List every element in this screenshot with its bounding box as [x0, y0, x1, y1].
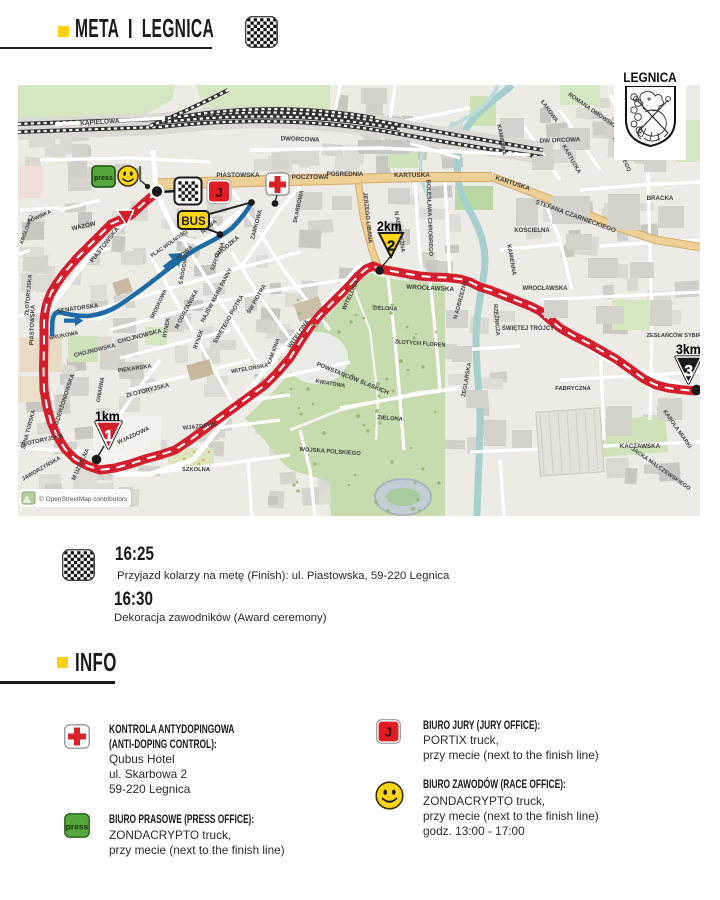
svg-text:2km: 2km [377, 219, 402, 235]
svg-text:BUS: BUS [181, 216, 206, 228]
svg-text:DWORCOWA: DWORCOWA [281, 135, 321, 143]
svg-text:KOŚCIELNA: KOŚCIELNA [514, 227, 550, 234]
svg-text:DW ORCOWA: DW ORCOWA [540, 136, 581, 144]
svg-text:ŚWIĘTEJ TRÓJCY: ŚWIĘTEJ TRÓJCY [502, 324, 554, 332]
svg-text:WROCŁAWSKA: WROCŁAWSKA [523, 286, 569, 292]
svg-text:PIASTOWSKA: PIASTOWSKA [216, 172, 260, 179]
svg-text:SZKOLNA: SZKOLNA [182, 467, 211, 473]
svg-text:J: J [385, 725, 392, 740]
svg-text:J: J [215, 185, 222, 200]
svg-text:ZIELONA: ZIELONA [373, 305, 398, 312]
svg-text:3km: 3km [676, 342, 700, 358]
svg-text:FABRYCZNA: FABRYCZNA [555, 386, 591, 392]
svg-text:ZESŁAŃCÓW SYBIRU: ZESŁAŃCÓW SYBIRU [647, 331, 700, 339]
svg-text:1: 1 [104, 428, 113, 445]
svg-text:2: 2 [387, 238, 395, 255]
svg-text:© OpenStreetMap contributors: © OpenStreetMap contributors [39, 495, 128, 503]
svg-text:3: 3 [684, 363, 693, 380]
svg-text:POCZTOWA: POCZTOWA [292, 174, 329, 181]
svg-text:KACZAWSKA: KACZAWSKA [620, 443, 661, 450]
svg-text:1km: 1km [95, 409, 120, 425]
svg-text:BRACKA: BRACKA [647, 195, 674, 202]
svg-text:press: press [66, 822, 89, 832]
svg-text:press: press [94, 175, 113, 182]
svg-text:POŚREDNIA: POŚREDNIA [327, 171, 364, 178]
svg-text:KARTUSKA: KARTUSKA [394, 172, 430, 179]
